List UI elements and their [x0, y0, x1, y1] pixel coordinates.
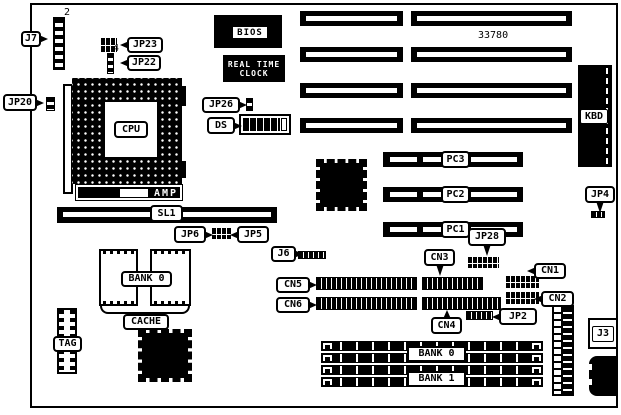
capacitor-bar-top — [180, 86, 186, 106]
jp26-label: JP26 — [202, 97, 240, 113]
cache-bank-label: BANK 0 — [121, 271, 172, 287]
isa-slot1-right — [411, 11, 572, 26]
cn1-header — [506, 276, 539, 288]
jp6-jp5-jumper — [212, 228, 231, 239]
j7-pin-header — [53, 17, 65, 70]
amp-chip: AMP — [75, 184, 183, 201]
cn6-header — [316, 297, 417, 310]
cn1-label: CN1 — [534, 263, 566, 279]
amp-label: AMP — [154, 189, 178, 199]
cn5-header — [316, 277, 417, 290]
j3-connector — [589, 356, 618, 396]
jp6-label: JP6 — [174, 226, 206, 243]
rtc-chip: REAL TIME CLOCK — [223, 55, 285, 82]
cn4-header — [422, 297, 501, 310]
jp4-label: JP4 — [585, 186, 615, 203]
pc3-label: PC3 — [441, 151, 470, 168]
j3-box: J3 — [588, 318, 618, 349]
rtc-label-line1: REAL TIME — [228, 60, 280, 69]
jp5-label: JP5 — [237, 226, 269, 243]
jp22-label: JP22 — [127, 55, 161, 71]
j3-label: J3 — [592, 326, 614, 342]
jp28-label: JP28 — [468, 228, 506, 246]
ds-display-last-segment — [281, 118, 287, 131]
cn6-label: CN6 — [276, 297, 310, 313]
jp2-jumper — [466, 311, 493, 320]
j7-pin2-number: 2 — [64, 8, 70, 18]
cn4-label: CN4 — [431, 317, 462, 334]
cn3-header — [422, 277, 483, 290]
cpu-socket: CPU — [72, 78, 182, 184]
ds-label: DS — [207, 117, 235, 134]
amp-window — [120, 189, 148, 197]
bios-chip: BIOS — [214, 15, 282, 48]
jp20-jumper — [46, 97, 55, 111]
power-connector — [552, 305, 574, 396]
chipset-chip — [316, 159, 367, 211]
motherboard-diagram: J7 2 4 JP23 JP22 JP20 CPU AMP SL1 JP6 JP… — [0, 0, 621, 415]
isa-slot4-right — [411, 118, 572, 133]
cache-controller-chip — [138, 329, 192, 382]
capacitor-bar-bottom — [180, 161, 186, 178]
jp20-label: JP20 — [3, 94, 37, 111]
isa-slot2-left — [300, 47, 403, 62]
isa-slot2-right — [411, 47, 572, 62]
simm-bank1-label: BANK 1 — [407, 371, 466, 387]
isa-slot3-right — [411, 83, 572, 98]
kbd-connector: KBD — [578, 65, 612, 167]
cn5-label: CN5 — [276, 277, 310, 293]
tag-label: TAG — [53, 336, 82, 352]
cn3-label: CN3 — [424, 249, 455, 266]
ds-display-segments — [243, 118, 280, 131]
pci-slot-pc3: PC3 — [383, 152, 523, 167]
kbd-label: KBD — [580, 109, 608, 124]
j7-label: J7 — [21, 31, 41, 47]
cpu-label: CPU — [114, 121, 148, 138]
jp22-jumper — [107, 53, 114, 74]
j6-label: J6 — [271, 246, 296, 262]
sl1-label: SL1 — [150, 205, 183, 222]
ds-display — [239, 114, 291, 135]
board-part-number: 33780 — [478, 31, 508, 41]
isa-slot4-left — [300, 118, 403, 133]
bios-label: BIOS — [237, 28, 263, 38]
isa-slot1-left — [300, 11, 403, 26]
cpu-socket-center: CPU — [105, 102, 157, 157]
simm-bank0-label: BANK 0 — [407, 346, 466, 362]
pc1-label: PC1 — [441, 221, 470, 238]
isa-slot3-left — [300, 83, 403, 98]
jp28-header — [468, 257, 499, 268]
pc2-label: PC2 — [441, 186, 470, 203]
pci-slot-pc2: PC2 — [383, 187, 523, 202]
jp26-jumper — [246, 98, 253, 111]
jp23-label: JP23 — [127, 37, 163, 53]
cache-brace — [100, 306, 190, 314]
rtc-label-line2: CLOCK — [239, 69, 268, 78]
cn2-label: CN2 — [541, 291, 574, 307]
jp2-label: JP2 — [499, 308, 537, 325]
cache-label: CACHE — [123, 314, 169, 330]
